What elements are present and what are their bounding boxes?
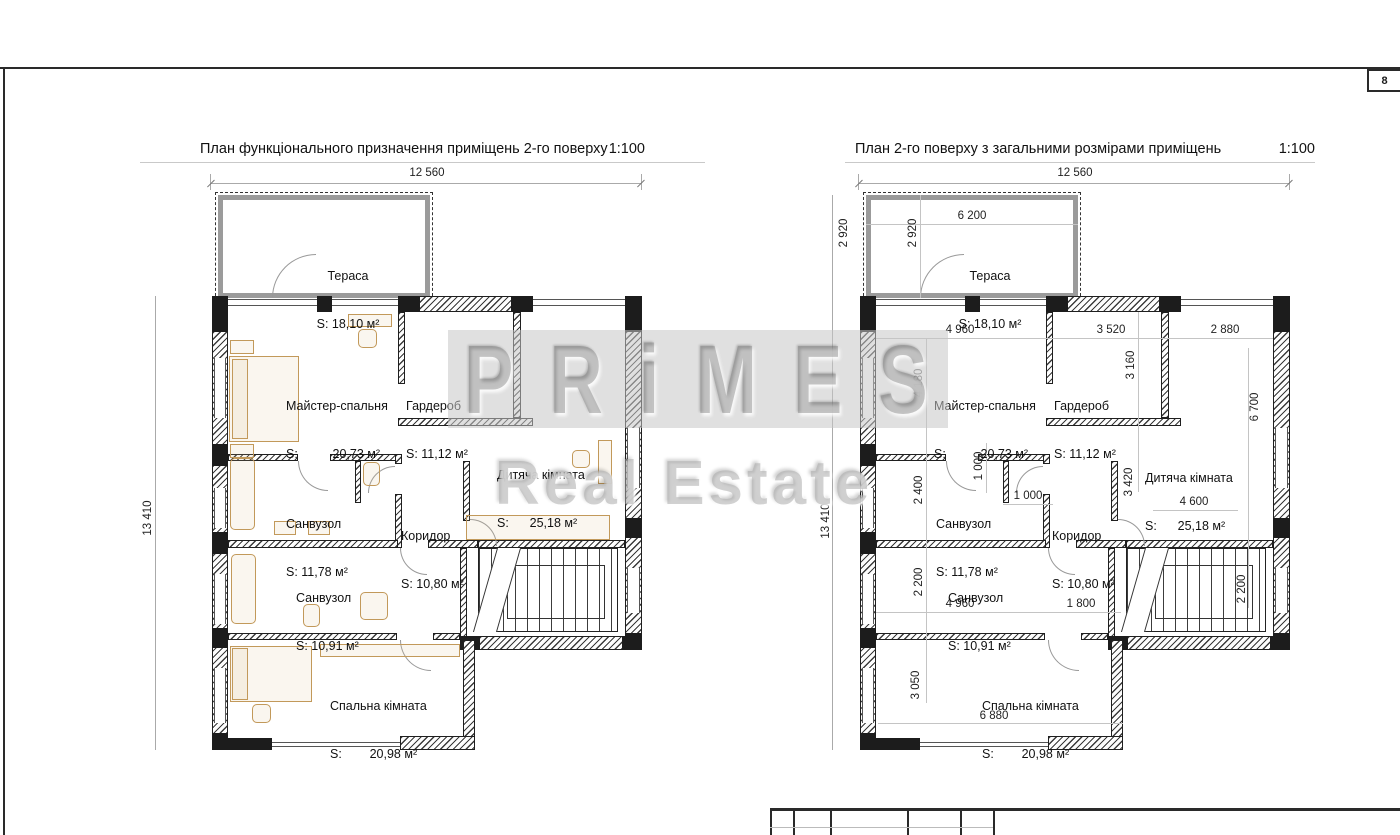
dim-hairline	[926, 338, 927, 703]
titleblock-hline	[770, 827, 993, 828]
wall-segment	[398, 312, 405, 384]
door-swing-arc	[272, 254, 316, 298]
room-label-wardrobe: Гардероб S: 11,12 м²	[406, 366, 468, 494]
room-label-terrace: Тераса S: 18,10 м²	[959, 236, 1022, 364]
sheet-number-box: 8	[1367, 69, 1400, 92]
dim-terrace-height-outer: 2 920	[838, 219, 850, 248]
dim-children-height: 6 700	[1249, 393, 1261, 422]
wall-segment	[398, 296, 420, 312]
wall-segment	[1046, 312, 1053, 384]
window-segment	[862, 358, 874, 418]
nightstand	[230, 444, 254, 458]
floor-plan-dimensions: 12 560 13 410 6 200 2 920 2 920 4 960 3 …	[858, 188, 1290, 760]
wall-segment	[212, 444, 228, 466]
window-segment	[862, 488, 874, 528]
wall-segment	[1043, 454, 1050, 464]
wall-segment	[1046, 296, 1068, 312]
window-segment	[862, 668, 874, 723]
titleblock-vline	[793, 810, 795, 835]
dim-line-top	[858, 183, 1290, 184]
bathtub	[231, 554, 256, 624]
room-label-bedroom: Спальна кімната S: 20,98 м²	[330, 666, 427, 794]
wall-segment	[860, 738, 920, 750]
room-label-children: Дитяча кімната S: 25,18 м²	[497, 435, 585, 563]
dim-hairline	[1248, 348, 1249, 608]
dim-terrace-height-inner: 2 920	[907, 219, 919, 248]
wall-segment	[513, 312, 521, 418]
dim-hairline	[866, 224, 1078, 225]
window-segment	[627, 428, 640, 488]
door-swing-arc	[1118, 519, 1145, 546]
wall-segment	[395, 454, 402, 464]
window-segment	[214, 574, 226, 624]
wall-segment	[433, 633, 460, 640]
shower	[360, 592, 388, 620]
dim-stairs-height: 2 200	[1236, 575, 1248, 604]
wall-segment	[860, 628, 876, 648]
window-segment	[876, 299, 965, 306]
wall-segment	[1273, 312, 1290, 332]
wall-segment	[1108, 636, 1290, 650]
bed-pillows	[232, 359, 248, 439]
right-plan-scale: 1:100	[1279, 141, 1315, 159]
dim-bath1-height: 2 400	[913, 476, 925, 505]
left-title-underline	[140, 162, 705, 163]
window-segment	[533, 299, 625, 306]
window-segment	[627, 568, 640, 613]
wall-segment	[860, 312, 876, 332]
room-label-corridor: Коридор S: 10,80 м²	[401, 496, 464, 624]
window-segment	[214, 358, 226, 418]
left-plan-title-row: План функціонального призначення приміще…	[200, 141, 645, 159]
wall-segment	[625, 312, 642, 332]
wall-segment	[1161, 312, 1169, 418]
room-label-master: Майстер-спальня S: 20,73 м²	[286, 366, 388, 494]
wall-segment	[511, 296, 533, 312]
titleblock-top-line	[770, 808, 1400, 811]
dim-overall-width: 12 560	[1057, 167, 1092, 179]
wall-segment	[212, 532, 228, 554]
right-title-underline	[845, 162, 1315, 163]
dim-line-left	[155, 296, 156, 750]
room-label-corridor: Коридор S: 10,80 м²	[1052, 496, 1115, 624]
wall-segment	[1273, 296, 1290, 312]
frame-left-line	[3, 67, 5, 835]
dim-children-inner-height: 3 420	[1123, 468, 1135, 497]
room-label-wardrobe: Гардероб S: 11,12 м²	[1054, 366, 1116, 494]
titleblock-vline	[830, 810, 832, 835]
window-segment	[1181, 299, 1273, 306]
desk	[598, 440, 612, 484]
floor-plan-functional: 12 560 13 410 Тераса S: 18,10 м² Майстер…	[210, 188, 642, 760]
window-segment	[862, 574, 874, 624]
wall-segment	[622, 636, 642, 650]
window-segment	[214, 488, 226, 528]
frame-top-line	[0, 67, 1400, 69]
window-segment	[228, 299, 317, 306]
room-label-bedroom: Спальна кімната S: 20,98 м²	[982, 666, 1079, 794]
stair-rail	[507, 565, 605, 619]
wall-segment	[1273, 518, 1290, 538]
bed-pillows	[232, 648, 248, 700]
wall-segment	[1270, 636, 1290, 650]
wall-segment	[463, 640, 475, 750]
dim-hairline	[876, 338, 1273, 339]
right-plan-title: План 2-го поверху з загальними розмірами…	[855, 141, 1221, 159]
drawing-sheet: { "sheet": { "number": "8" }, "watermark…	[0, 0, 1400, 835]
dim-hairline	[1003, 504, 1053, 505]
dim-master-height: 4 180	[913, 369, 925, 398]
dim-bedroom-height: 3 050	[910, 671, 922, 700]
window-segment	[214, 668, 226, 723]
wall-segment	[1159, 296, 1181, 312]
dim-terrace-width: 6 200	[958, 210, 987, 222]
wall-segment	[212, 296, 228, 312]
room-label-children: Дитяча кімната S: 25,18 м²	[1145, 438, 1233, 566]
left-plan-scale: 1:100	[609, 141, 645, 159]
dim-overall-height: 13 410	[820, 503, 832, 538]
wall-segment	[860, 296, 876, 312]
wall-segment	[1081, 633, 1108, 640]
wall-segment	[860, 444, 876, 466]
sheet-number: 8	[1381, 75, 1387, 87]
left-plan-title: План функціонального призначення приміще…	[200, 141, 608, 159]
dim-overall-height: 13 410	[142, 500, 154, 535]
dim-line-left	[832, 195, 833, 750]
right-plan-title-row: План 2-го поверху з загальними розмірами…	[855, 141, 1315, 159]
titleblock-vline	[770, 810, 772, 835]
wall-segment	[460, 636, 642, 650]
titleblock-vline	[960, 810, 962, 835]
dim-hairline	[920, 195, 921, 298]
dim-bath2-height: 2 200	[913, 568, 925, 597]
wall-segment	[625, 296, 642, 312]
room-label-terrace: Тераса S: 18,10 м²	[317, 236, 380, 364]
bathtub	[230, 458, 255, 530]
wall-segment	[212, 312, 228, 332]
dim-hairline	[1138, 312, 1139, 492]
titleblock-vline	[993, 810, 995, 835]
wall-segment	[625, 518, 642, 538]
window-segment	[1275, 428, 1288, 488]
titleblock-vline	[907, 810, 909, 835]
wall-segment	[1111, 640, 1123, 750]
dim-wardrobe-height: 3 160	[1125, 351, 1137, 380]
wall-segment	[212, 738, 272, 750]
dim-row1-c: 2 880	[1211, 324, 1240, 336]
chair	[252, 704, 271, 723]
room-label-master: Майстер-спальня S: 20,73 м²	[934, 366, 1036, 494]
wall-segment	[860, 532, 876, 554]
dim-overall-width: 12 560	[409, 167, 444, 179]
dim-line-top	[210, 183, 642, 184]
wall-segment	[212, 628, 228, 648]
door-swing-arc	[920, 254, 964, 298]
dim-row1-b: 3 520	[1097, 324, 1126, 336]
window-segment	[1275, 568, 1288, 613]
nightstand	[230, 340, 254, 354]
